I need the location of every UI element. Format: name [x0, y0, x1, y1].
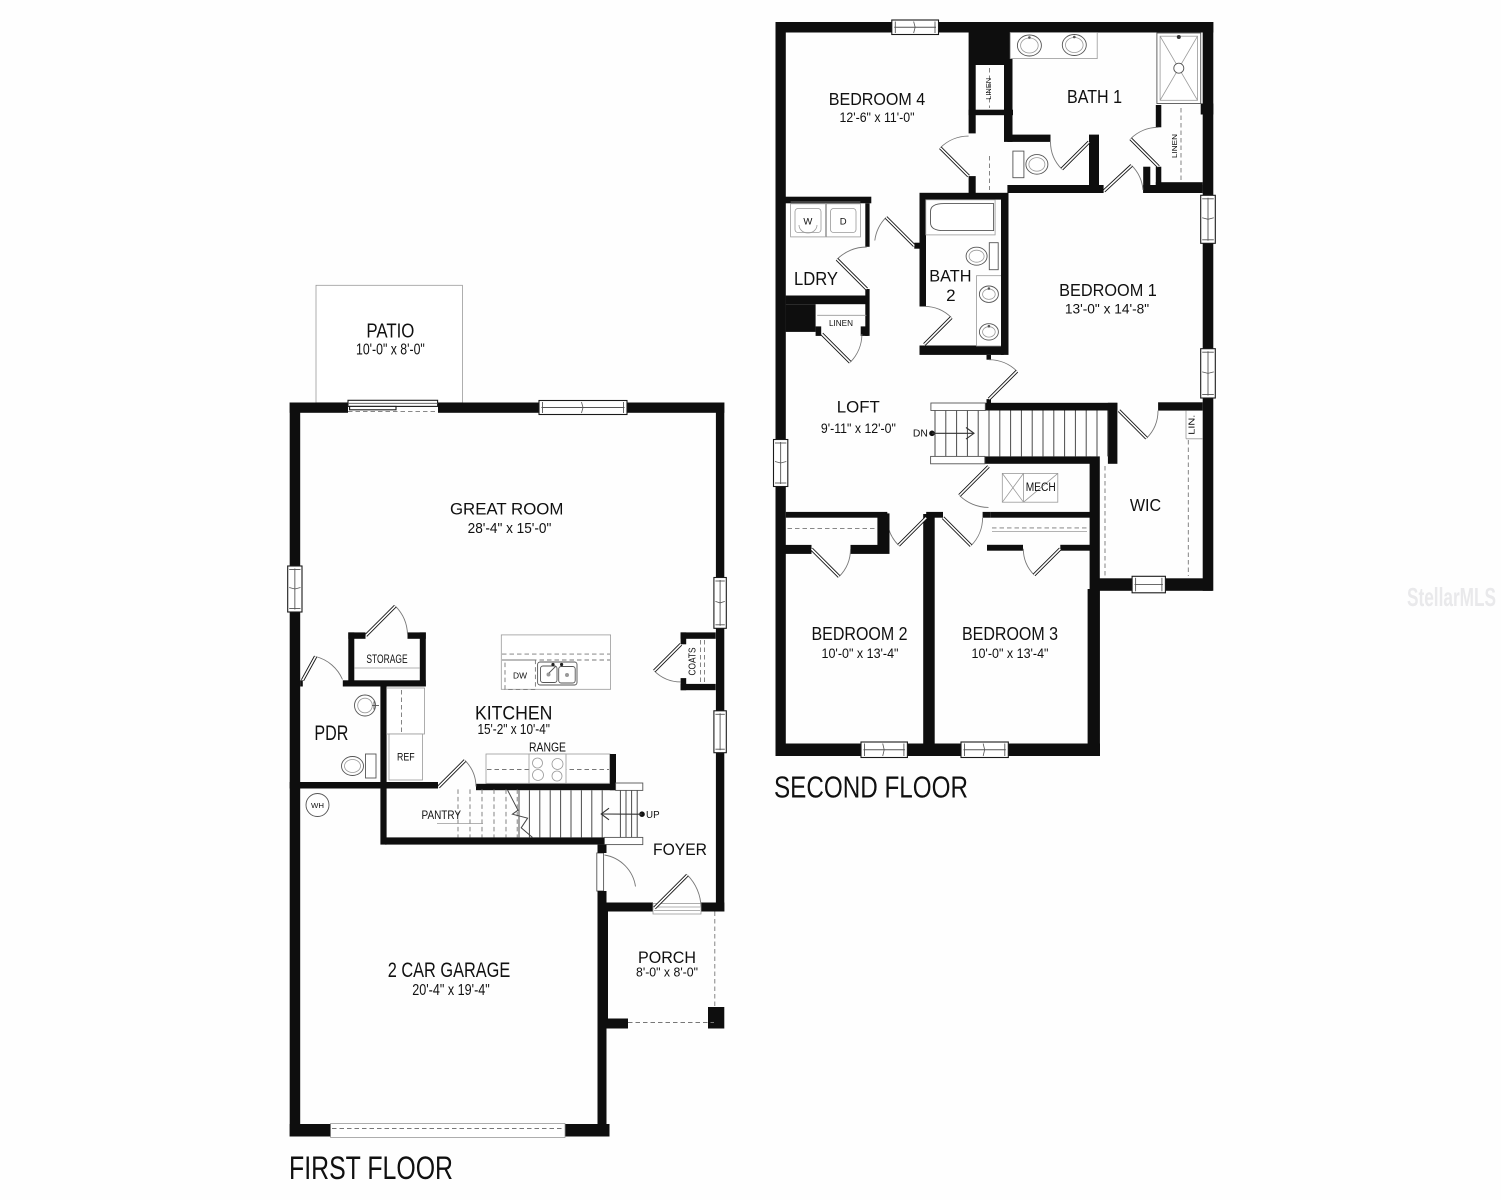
svg-text:FIRST FLOOR: FIRST FLOOR: [289, 1150, 453, 1186]
svg-text:LINEN: LINEN: [984, 78, 993, 100]
svg-text:13'-0" x 14'-8": 13'-0" x 14'-8": [1065, 301, 1149, 317]
svg-text:MECH: MECH: [1026, 482, 1056, 494]
svg-text:UP: UP: [646, 810, 660, 821]
svg-text:2: 2: [946, 286, 955, 305]
svg-text:REF: REF: [397, 752, 415, 764]
svg-text:StellarMLS: StellarMLS: [1407, 582, 1496, 612]
svg-text:10'-0" x 8'-0": 10'-0" x 8'-0": [356, 341, 425, 358]
svg-text:12'-6" x 11'-0": 12'-6" x 11'-0": [840, 109, 915, 125]
svg-text:LOFT: LOFT: [837, 399, 880, 417]
svg-text:9'-11" x 12'-0": 9'-11" x 12'-0": [821, 420, 896, 436]
svg-text:2 CAR GARAGE: 2 CAR GARAGE: [388, 959, 511, 982]
svg-text:COATS: COATS: [687, 648, 699, 676]
svg-text:15'-2" x 10'-4": 15'-2" x 10'-4": [477, 722, 550, 738]
svg-text:28'-4" x 15'-0": 28'-4" x 15'-0": [468, 521, 552, 537]
svg-text:SECOND FLOOR: SECOND FLOOR: [774, 771, 968, 805]
svg-text:BATH: BATH: [929, 267, 971, 286]
svg-text:PORCH: PORCH: [638, 948, 696, 967]
svg-text:D: D: [840, 217, 847, 228]
svg-text:8'-0" x 8'-0": 8'-0" x 8'-0": [636, 966, 698, 980]
svg-text:STORAGE: STORAGE: [366, 653, 407, 666]
svg-text:GREAT ROOM: GREAT ROOM: [450, 500, 564, 519]
svg-text:LDRY: LDRY: [794, 269, 838, 289]
svg-text:W: W: [803, 217, 812, 228]
svg-text:10'-0" x 13'-4": 10'-0" x 13'-4": [822, 645, 899, 661]
svg-text:WH: WH: [311, 801, 324, 810]
svg-text:DW: DW: [513, 671, 527, 681]
svg-text:PDR: PDR: [314, 722, 348, 745]
svg-text:BEDROOM 3: BEDROOM 3: [962, 623, 1058, 644]
svg-text:LINEN: LINEN: [829, 318, 853, 328]
svg-text:BEDROOM 1: BEDROOM 1: [1059, 280, 1157, 300]
svg-text:10'-0" x 13'-4": 10'-0" x 13'-4": [972, 645, 1049, 661]
svg-text:BATH 1: BATH 1: [1067, 87, 1122, 107]
svg-text:BEDROOM 4: BEDROOM 4: [829, 89, 926, 109]
svg-text:FOYER: FOYER: [653, 840, 707, 859]
svg-text:WIC: WIC: [1130, 495, 1161, 515]
svg-text:LIN.: LIN.: [1188, 415, 1197, 435]
svg-text:BEDROOM 2: BEDROOM 2: [812, 623, 908, 644]
svg-text:DN: DN: [913, 429, 928, 440]
svg-text:RANGE: RANGE: [529, 741, 566, 755]
svg-text:LINEN: LINEN: [1170, 134, 1179, 158]
svg-text:20'-4" x 19'-4": 20'-4" x 19'-4": [412, 982, 490, 999]
svg-text:PANTRY: PANTRY: [422, 808, 462, 822]
svg-text:PATIO: PATIO: [366, 321, 414, 343]
